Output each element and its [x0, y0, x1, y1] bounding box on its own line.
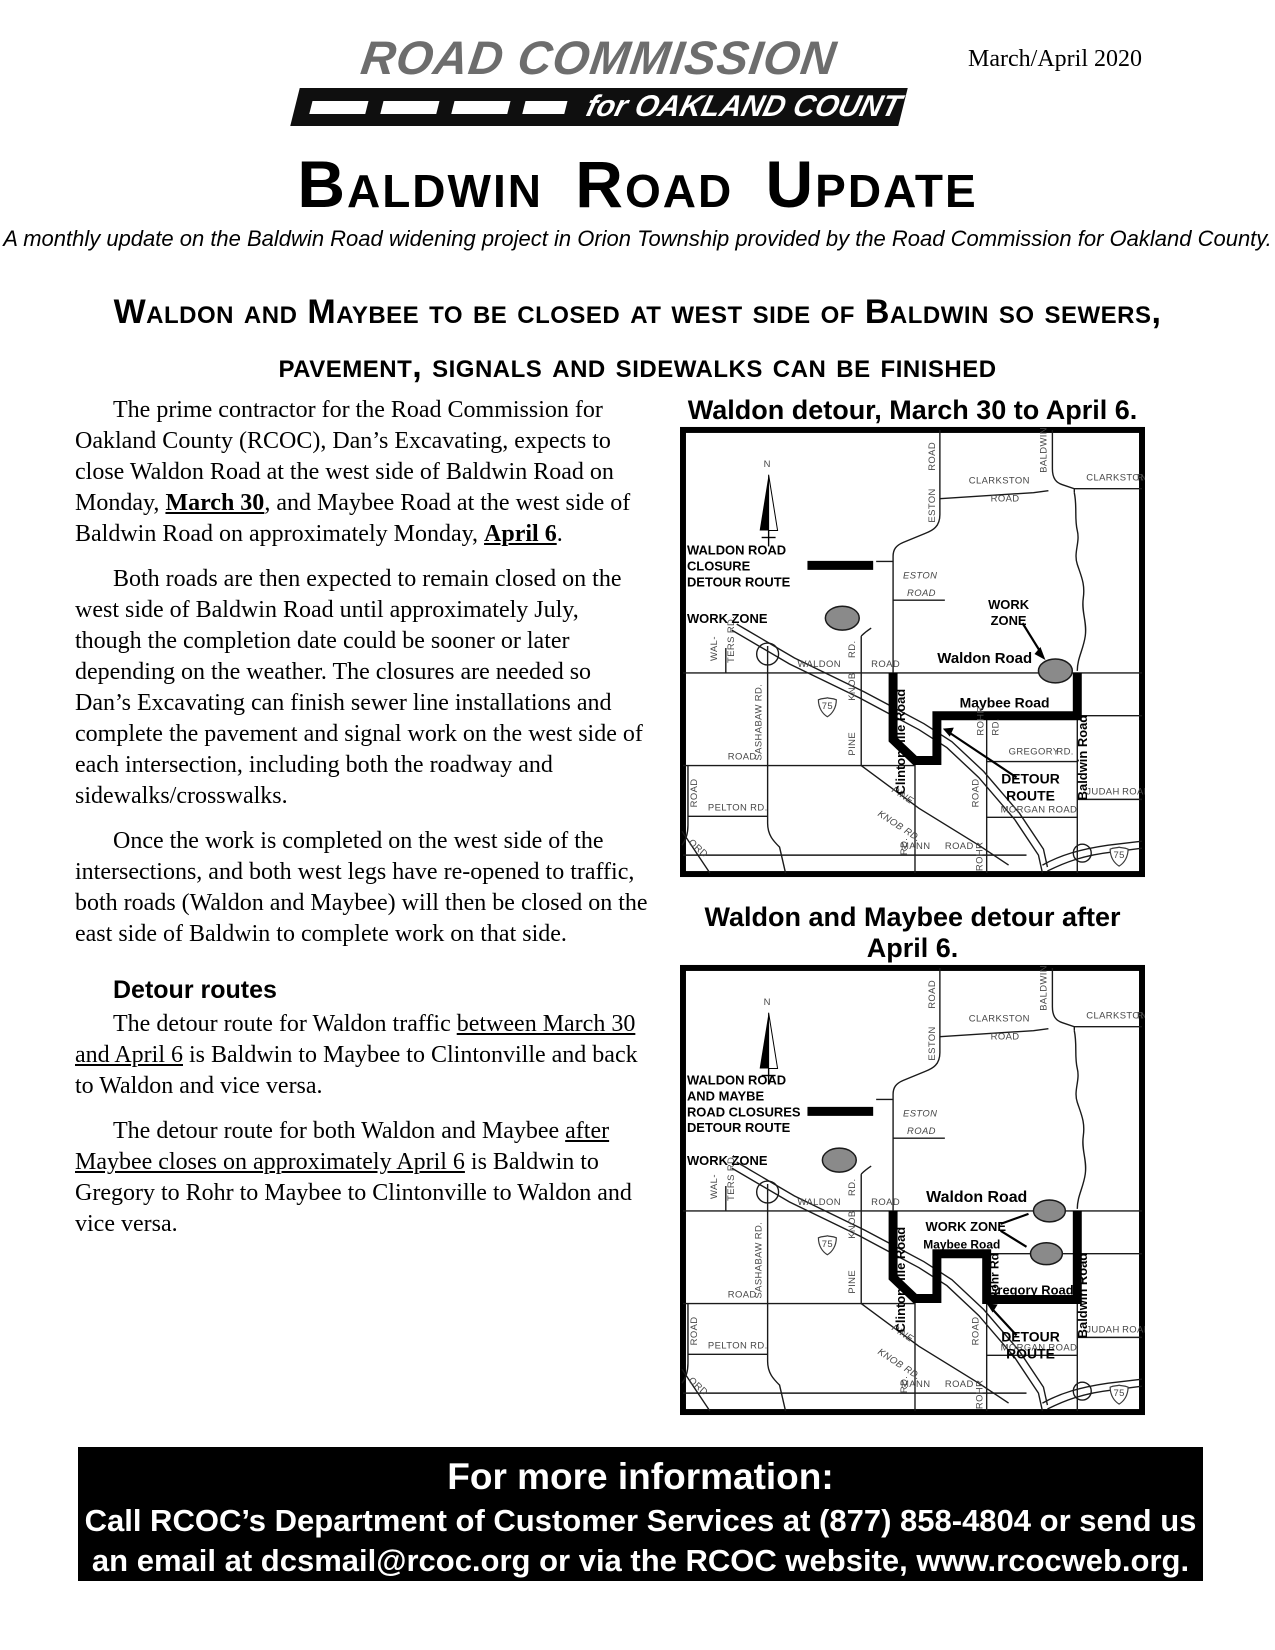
work-zone-callout: ZONE [991, 613, 1027, 628]
footer-heading: For more information: [78, 1456, 1203, 1498]
p1-text: . [557, 521, 563, 547]
work-zone-leader-line [1001, 1231, 1027, 1247]
work-zone-callout: WORK [988, 597, 1030, 612]
legend-line: CLOSURE [687, 558, 751, 573]
gregory-rd-label: RD. [1056, 747, 1073, 758]
rohr-top-label: ROHR [976, 706, 987, 735]
logo-road-commission: ROAD COMMISSION [291, 30, 907, 85]
legend-line: DETOUR ROUTE [687, 1120, 791, 1135]
detour-route-callout: ROUTE [1006, 1345, 1055, 1361]
paragraph-1: The prime contractor for the Road Commis… [75, 395, 649, 550]
newsletter-page: ROAD COMMISSION for OAKLAND COUNTY March… [0, 0, 1275, 1650]
work-zone-callout: WORK ZONE [926, 1219, 1007, 1234]
issue-date: March/April 2020 [968, 46, 1142, 73]
baldwin-road-bold-label: Baldwin Road [1075, 715, 1090, 801]
p1-date-march30: March 30 [165, 490, 264, 516]
content: The prime contractor for the Road Commis… [75, 395, 1203, 1416]
legend-line: DETOUR ROUTE [687, 574, 791, 589]
work-zone-oval-maybee [1030, 1243, 1062, 1265]
map1-caption: Waldon detour, March 30 to April 6. [680, 395, 1145, 426]
work-zone-leader-line [1023, 623, 1041, 652]
waldon-road-bold-label: Waldon Road [926, 1189, 1027, 1206]
paragraph-3: Once the work is completed on the west s… [75, 826, 649, 950]
subtitle: A monthly update on the Baldwin Road wid… [0, 226, 1275, 252]
detour-route-callout: ROUTE [1006, 787, 1055, 803]
legend-line: ROAD CLOSURES [687, 1104, 801, 1119]
detour-map-1: N [680, 426, 1145, 878]
article-column: The prime contractor for the Road Commis… [75, 395, 649, 1416]
baldwin-road-bold-label: Baldwin Road [1075, 1253, 1090, 1339]
detour-map-2: WALDON ROAD AND MAYBE ROAD CLOSURES DETO… [680, 964, 1145, 1416]
leader-arrowhead [1034, 647, 1045, 660]
legend-work-zone-oval [825, 606, 859, 630]
legend-line: WALDON ROAD [687, 542, 786, 557]
map2-overlay: WALDON ROAD AND MAYBE ROAD CLOSURES DETO… [687, 1072, 1090, 1361]
clintonville-road-bold-label: Clintonville Road [893, 689, 908, 795]
paragraph-2: Both roads are then expected to remain c… [75, 564, 649, 812]
headline: Waldon and Maybee to be closed at west s… [68, 286, 1207, 393]
legend-work-zone: WORK ZONE [687, 611, 768, 626]
gregory-label: GREGORY [1009, 747, 1060, 758]
map2-caption: Waldon and Maybee detour after April 6. [680, 902, 1145, 964]
logo-county-text: for OAKLAND COUNTY [583, 90, 925, 124]
work-zone-oval-waldon [1033, 1200, 1065, 1222]
legend-work-zone-oval [822, 1148, 856, 1172]
road-dash-icon [309, 101, 368, 114]
paragraph-4: The detour route for Waldon traffic betw… [75, 1009, 649, 1102]
footer-banner: For more information: Call RCOC’s Depart… [78, 1447, 1203, 1581]
p1-date-april6: April 6 [484, 521, 557, 547]
legend-line: WALDON ROAD [687, 1072, 786, 1087]
maps-column: Waldon detour, March 30 to April 6. N [655, 395, 1203, 1416]
footer-contact-line: Call RCOC’s Department of Customer Servi… [78, 1501, 1203, 1541]
road-dash-icon [451, 101, 510, 114]
rcoc-logo: ROAD COMMISSION for OAKLAND COUNTY [295, 30, 903, 126]
legend-work-zone: WORK ZONE [687, 1153, 768, 1168]
maybee-road-bold-label: Maybee Road [960, 695, 1050, 711]
p4-text: The detour route for Waldon traffic [113, 1011, 457, 1037]
page-title: Baldwin Road Update [0, 146, 1275, 222]
detour-route-callout: DETOUR [1001, 1328, 1060, 1344]
road-dash-icon [522, 101, 567, 114]
leader-arrowhead [987, 1304, 998, 1313]
detour-routes-heading: Detour routes [113, 976, 649, 1005]
clintonville-road-bold-label: Clintonville Road [893, 1227, 908, 1333]
paragraph-5: The detour route for both Waldon and May… [75, 1116, 649, 1240]
gregory-road-bold-label: Gregory Road [987, 1283, 1073, 1298]
rohr-top-rd-label: RD. [991, 718, 1002, 735]
legend-line: AND MAYBE [687, 1088, 765, 1103]
waldon-road-bold-label: Waldon Road [937, 650, 1032, 667]
logo-bar: for OAKLAND COUNTY [290, 88, 907, 126]
road-dash-icon [380, 101, 439, 114]
footer-contact-line: an email at dcsmail@rcoc.org or via the … [78, 1541, 1203, 1581]
p5-text: The detour route for both Waldon and May… [113, 1118, 565, 1144]
maybee-road-bold-label: Maybee Road [923, 1238, 1000, 1252]
work-zone-oval [1038, 659, 1072, 683]
